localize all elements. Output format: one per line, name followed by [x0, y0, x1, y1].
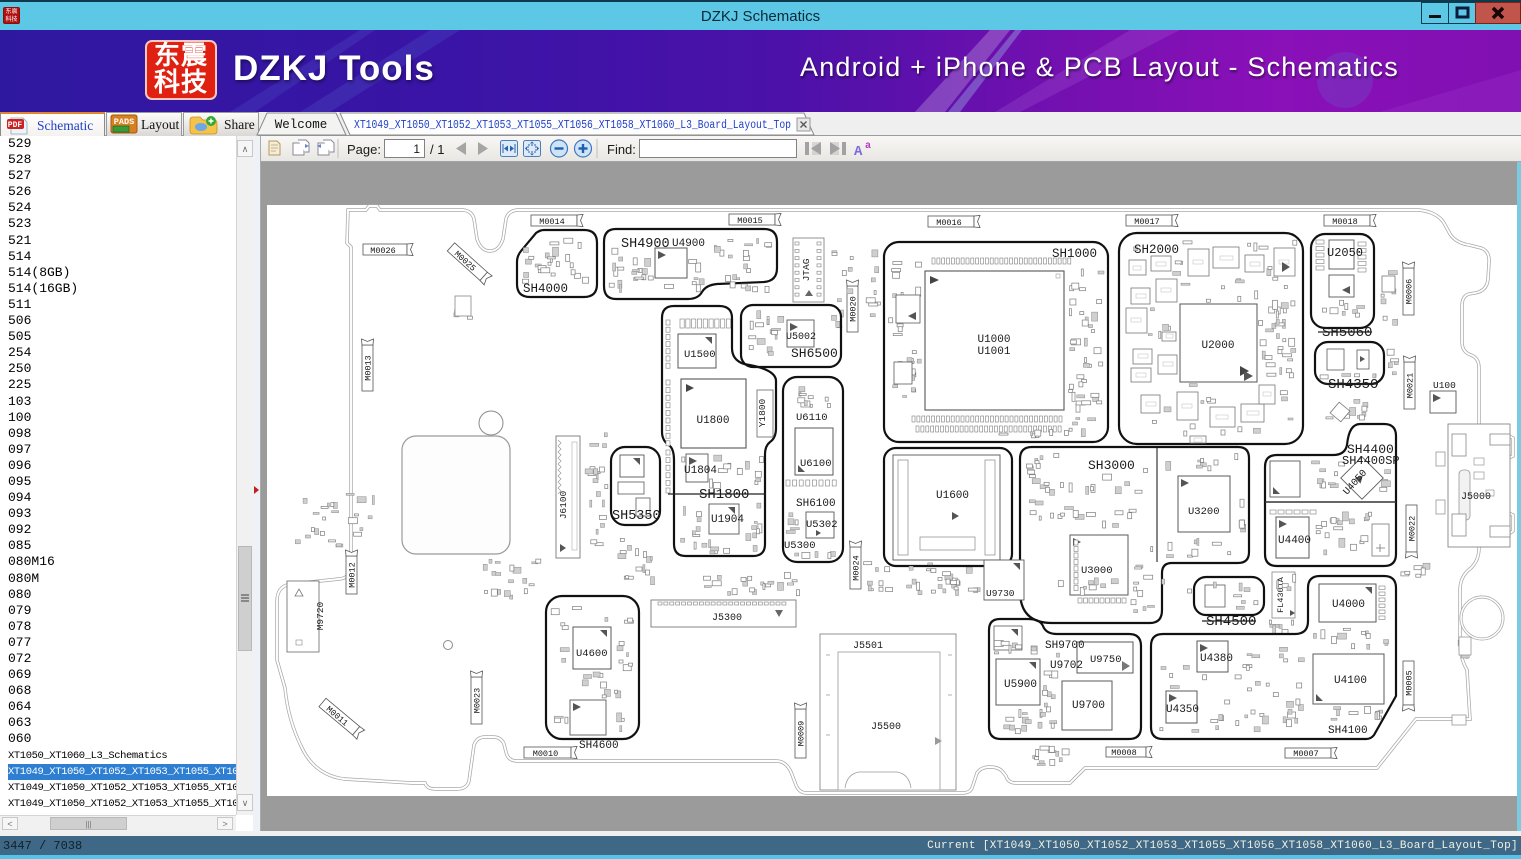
svg-text:U4600: U4600 — [576, 648, 608, 660]
svg-text:U2050: U2050 — [1327, 246, 1363, 260]
svg-text:J5000: J5000 — [1461, 492, 1491, 503]
svg-text:M0009: M0009 — [797, 721, 807, 747]
svg-text:M0013: M0013 — [364, 355, 374, 381]
svg-text:U4350: U4350 — [1166, 704, 1199, 716]
svg-text:U4000: U4000 — [1332, 599, 1365, 611]
svg-text:U100: U100 — [1433, 380, 1456, 391]
svg-text:U5900: U5900 — [1004, 679, 1037, 691]
svg-text:M0005: M0005 — [1405, 670, 1415, 696]
svg-text:U9750: U9750 — [1090, 654, 1122, 666]
svg-text:M0012: M0012 — [348, 562, 358, 588]
svg-text:U5002: U5002 — [786, 332, 816, 343]
svg-text:M0010: M0010 — [533, 749, 559, 759]
svg-text:PDF: PDF — [8, 121, 23, 130]
svg-text:A: A — [854, 144, 863, 160]
svg-text:U3200: U3200 — [1188, 506, 1220, 518]
svg-text:M0014: M0014 — [539, 217, 565, 227]
svg-text:M0021: M0021 — [1406, 373, 1416, 399]
svg-text:JTAG: JTAG — [801, 258, 812, 281]
svg-text:M0006: M0006 — [1405, 279, 1415, 305]
svg-text:SH5350: SH5350 — [612, 509, 661, 524]
svg-text:U3000: U3000 — [1081, 565, 1113, 577]
svg-text:a: a — [865, 141, 871, 152]
svg-text:PADS: PADS — [114, 117, 134, 127]
svg-text:U4400: U4400 — [1278, 535, 1311, 547]
svg-text:U4100: U4100 — [1334, 675, 1367, 687]
svg-text:M0015: M0015 — [737, 216, 763, 226]
svg-text:M0020: M0020 — [849, 296, 859, 322]
svg-text:U9730: U9730 — [986, 588, 1015, 599]
svg-text:U9700: U9700 — [1072, 700, 1105, 712]
svg-text:SH6100: SH6100 — [796, 498, 836, 510]
svg-text:J6100: J6100 — [558, 490, 569, 519]
svg-text:Y1800: Y1800 — [757, 398, 768, 427]
svg-text:Welcome: Welcome — [275, 118, 328, 132]
svg-text:SH3000: SH3000 — [1088, 458, 1135, 473]
svg-text:SH4000: SH4000 — [523, 282, 568, 296]
svg-text:U1600: U1600 — [936, 490, 969, 502]
svg-text:SH4900: SH4900 — [621, 237, 670, 252]
svg-text:U4380: U4380 — [1200, 653, 1233, 665]
svg-text:SH9700: SH9700 — [1045, 640, 1085, 652]
svg-text:U5300: U5300 — [784, 540, 816, 552]
svg-text:SH1800: SH1800 — [699, 487, 749, 503]
svg-text:M0016: M0016 — [936, 218, 962, 228]
svg-text:XT1049_XT1050_XT1052_XT1053_XT: XT1049_XT1050_XT1052_XT1053_XT1055_XT105… — [354, 119, 791, 132]
svg-text:U1804: U1804 — [684, 465, 717, 477]
svg-text:M0022: M0022 — [1408, 516, 1418, 542]
svg-text:SH1000: SH1000 — [1052, 247, 1097, 261]
svg-text:U5302: U5302 — [806, 519, 838, 531]
svg-text:M0007: M0007 — [1293, 749, 1319, 759]
svg-text:SH4500: SH4500 — [1206, 614, 1256, 630]
svg-text:U1500: U1500 — [684, 349, 716, 361]
svg-text:U4900: U4900 — [672, 238, 705, 250]
svg-text:U1904: U1904 — [711, 514, 744, 526]
svg-text:M0026: M0026 — [370, 246, 396, 256]
svg-text:M0024: M0024 — [852, 555, 862, 581]
svg-text:J5500: J5500 — [871, 722, 901, 733]
svg-text:J5501: J5501 — [853, 641, 883, 652]
svg-text:SH5060: SH5060 — [1322, 325, 1372, 341]
svg-text:U1000: U1000 — [977, 334, 1010, 346]
svg-text:SH6500: SH6500 — [791, 346, 838, 361]
svg-text:U6110: U6110 — [796, 412, 828, 424]
svg-text:J5300: J5300 — [712, 613, 742, 624]
svg-text:M0018: M0018 — [1332, 217, 1358, 227]
svg-text:SH4100: SH4100 — [1328, 725, 1368, 737]
svg-text:SH4350: SH4350 — [1328, 377, 1378, 393]
svg-text:U9702: U9702 — [1050, 660, 1083, 672]
svg-text:SH2000: SH2000 — [1134, 243, 1179, 257]
svg-text:U1800: U1800 — [696, 415, 729, 427]
svg-text:SH4400SP: SH4400SP — [1342, 454, 1400, 468]
svg-text:M9720: M9720 — [315, 601, 326, 630]
svg-text:M0017: M0017 — [1134, 217, 1160, 227]
svg-text:M0008: M0008 — [1111, 748, 1137, 758]
svg-text:M0023: M0023 — [473, 688, 483, 714]
svg-text:U2000: U2000 — [1201, 340, 1234, 352]
svg-text:U1001: U1001 — [977, 346, 1010, 358]
svg-text:SH4600: SH4600 — [579, 740, 619, 752]
svg-text:U6100: U6100 — [800, 458, 832, 470]
